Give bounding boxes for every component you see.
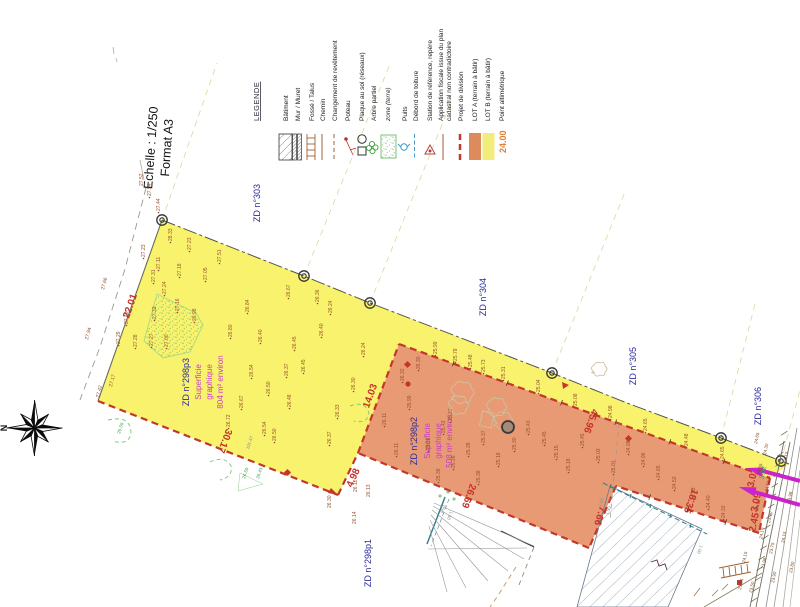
- svg-text:26.37: 26.37: [327, 431, 333, 444]
- svg-text:27.16: 27.16: [175, 298, 181, 311]
- svg-text:24.98: 24.98: [626, 440, 632, 453]
- svg-text:25.30: 25.30: [512, 437, 518, 450]
- svg-text:27.54: 27.54: [147, 183, 153, 196]
- svg-text:25.08: 25.08: [573, 393, 579, 406]
- svg-text:LEGENDE: LEGENDE: [252, 82, 261, 121]
- svg-text:25.26: 25.26: [426, 437, 432, 450]
- svg-text:27.40: 27.40: [124, 311, 130, 324]
- svg-text:25.73: 25.73: [481, 359, 487, 372]
- svg-text:27.05: 27.05: [203, 267, 209, 280]
- svg-text:ZD n°298p3: ZD n°298p3: [181, 358, 191, 406]
- svg-text:27.11: 27.11: [156, 257, 162, 269]
- svg-text:26.11: 26.11: [353, 480, 359, 492]
- svg-text:26.45: 26.45: [292, 336, 298, 349]
- svg-text:26.30: 26.30: [416, 356, 422, 369]
- svg-text:27.32: 27.32: [152, 306, 158, 319]
- svg-text:25.15: 25.15: [554, 445, 560, 458]
- svg-text:24.53: 24.53: [691, 487, 697, 500]
- svg-text:Plaque au sol (réseaux): Plaque au sol (réseaux): [359, 52, 366, 121]
- svg-text:25.04: 25.04: [536, 379, 542, 392]
- svg-text:ZD n°303: ZD n°303: [252, 184, 262, 222]
- svg-text:27.23: 27.23: [141, 244, 147, 257]
- svg-text:27.00: 27.00: [164, 334, 170, 347]
- svg-text:ZD n°298p1: ZD n°298p1: [363, 539, 373, 587]
- svg-text:27.29: 27.29: [116, 331, 122, 344]
- svg-text:24.00: 24.00: [498, 130, 508, 153]
- svg-text:25.78: 25.78: [453, 348, 459, 361]
- svg-text:26.72: 26.72: [226, 414, 232, 427]
- svg-text:26.67: 26.67: [239, 395, 245, 408]
- svg-text:26.36: 26.36: [315, 289, 321, 302]
- svg-text:25.45: 25.45: [580, 433, 586, 446]
- svg-text:Bâtiment: Bâtiment: [283, 95, 290, 121]
- svg-text:26.14: 26.14: [352, 511, 358, 524]
- svg-text:26.50: 26.50: [272, 428, 278, 441]
- svg-text:25.38: 25.38: [476, 470, 482, 483]
- svg-text:25.99: 25.99: [433, 341, 439, 354]
- svg-text:24.40: 24.40: [706, 495, 712, 508]
- svg-text:25.45: 25.45: [542, 431, 548, 444]
- svg-text:26.11: 26.11: [394, 443, 400, 455]
- svg-text:26.45: 26.45: [301, 359, 307, 372]
- svg-text:24.96: 24.96: [641, 452, 647, 465]
- svg-text:26.32: 26.32: [400, 368, 406, 381]
- svg-text:25.31: 25.31: [501, 366, 507, 379]
- svg-text:Débord de toiture: Débord de toiture: [413, 70, 420, 121]
- svg-text:804 m² environ: 804 m² environ: [216, 355, 225, 408]
- svg-text:27.52: 27.52: [139, 173, 145, 186]
- svg-text:cadastral non contradictoire: cadastral non contradictoire: [446, 41, 453, 121]
- svg-text:26.50: 26.50: [266, 381, 272, 394]
- svg-text:27.31: 27.31: [151, 269, 157, 282]
- svg-text:25.48: 25.48: [468, 354, 474, 367]
- svg-text:26.33: 26.33: [335, 404, 341, 417]
- svg-text:27.44: 27.44: [156, 198, 162, 211]
- svg-text:24.65: 24.65: [720, 446, 726, 459]
- svg-text:25.37: 25.37: [448, 408, 454, 421]
- svg-text:ZD n°305: ZD n°305: [628, 347, 638, 385]
- svg-text:26.54: 26.54: [262, 421, 268, 434]
- svg-text:26.48: 26.48: [287, 394, 293, 407]
- svg-text:25.18: 25.18: [496, 452, 502, 465]
- svg-text:25.37: 25.37: [481, 430, 487, 443]
- svg-text:26.67: 26.67: [286, 284, 292, 297]
- svg-text:Station de référence, repère: Station de référence, repère: [427, 40, 434, 121]
- svg-text:26.80: 26.80: [228, 324, 234, 337]
- svg-text:26.11: 26.11: [382, 413, 388, 425]
- svg-text:26.30: 26.30: [327, 495, 333, 508]
- svg-text:Fossé / Talus: Fossé / Talus: [309, 82, 316, 121]
- svg-text:Arbre partiel: Arbre partiel: [371, 85, 378, 121]
- svg-text:27.28: 27.28: [133, 334, 139, 347]
- svg-text:27.51: 27.51: [217, 249, 223, 262]
- svg-text:27.18: 27.18: [177, 263, 183, 276]
- svg-text:25.43: 25.43: [441, 420, 447, 433]
- svg-text:ZD n°304: ZD n°304: [478, 278, 488, 316]
- svg-text:Projet de division: Projet de division: [458, 71, 465, 121]
- svg-text:25.01: 25.01: [611, 460, 617, 473]
- svg-text:25.28: 25.28: [466, 442, 472, 455]
- svg-text:26.24: 26.24: [361, 342, 367, 355]
- svg-text:Superficie: Superficie: [194, 364, 203, 400]
- svg-text:27.23: 27.23: [187, 237, 193, 250]
- svg-text:Point altimétrique: Point altimétrique: [499, 70, 506, 121]
- svg-text:27.27: 27.27: [149, 333, 155, 346]
- svg-text:25.38: 25.38: [436, 468, 442, 481]
- svg-text:Chemin: Chemin: [320, 98, 327, 121]
- svg-text:Changement de revêtement: Changement de revêtement: [332, 40, 339, 121]
- svg-text:Application fiscale issue du p: Application fiscale issue du plan: [438, 28, 445, 121]
- svg-text:26.24: 26.24: [328, 300, 334, 313]
- svg-text:ZD n°298p2: ZD n°298p2: [409, 417, 419, 465]
- svg-text:25.03: 25.03: [596, 448, 602, 461]
- svg-text:28.33: 28.33: [168, 228, 174, 241]
- svg-text:26.37: 26.37: [284, 363, 290, 376]
- svg-text:LOT B (terrain à bâtir): LOT B (terrain à bâtir): [485, 58, 492, 121]
- svg-text:27.24: 27.24: [162, 281, 168, 294]
- svg-text:24.33: 24.33: [721, 505, 727, 518]
- svg-text:26.13: 26.13: [366, 484, 372, 497]
- svg-text:25.26: 25.26: [451, 455, 457, 468]
- svg-text:Mur / Muret: Mur / Muret: [295, 88, 302, 121]
- svg-text:26.40: 26.40: [319, 323, 325, 336]
- svg-text:26.84: 26.84: [245, 299, 251, 312]
- svg-text:25.18: 25.18: [566, 458, 572, 471]
- svg-text:25.43: 25.43: [526, 420, 532, 433]
- svg-text:LOT A (terrain à bâtir): LOT A (terrain à bâtir): [472, 59, 479, 121]
- svg-text:26.54: 26.54: [249, 364, 255, 377]
- svg-text:ZD n°306: ZD n°306: [753, 387, 763, 425]
- svg-text:26.40: 26.40: [258, 329, 264, 342]
- svg-text:24.65: 24.65: [656, 465, 662, 478]
- svg-text:24.98: 24.98: [608, 405, 614, 418]
- svg-text:24.65: 24.65: [643, 418, 649, 431]
- svg-text:graphique: graphique: [205, 364, 214, 400]
- svg-text:Puits: Puits: [402, 106, 409, 121]
- svg-text:26.30: 26.30: [351, 377, 357, 390]
- svg-text:26.98: 26.98: [192, 308, 198, 321]
- svg-text:zone (terre): zone (terre): [385, 87, 392, 122]
- svg-text:24.48: 24.48: [684, 433, 690, 446]
- svg-text:25.99: 25.99: [407, 395, 413, 408]
- svg-text:24.53: 24.53: [672, 476, 678, 489]
- svg-text:Poteau: Poteau: [345, 100, 352, 121]
- svg-text:N: N: [0, 425, 9, 432]
